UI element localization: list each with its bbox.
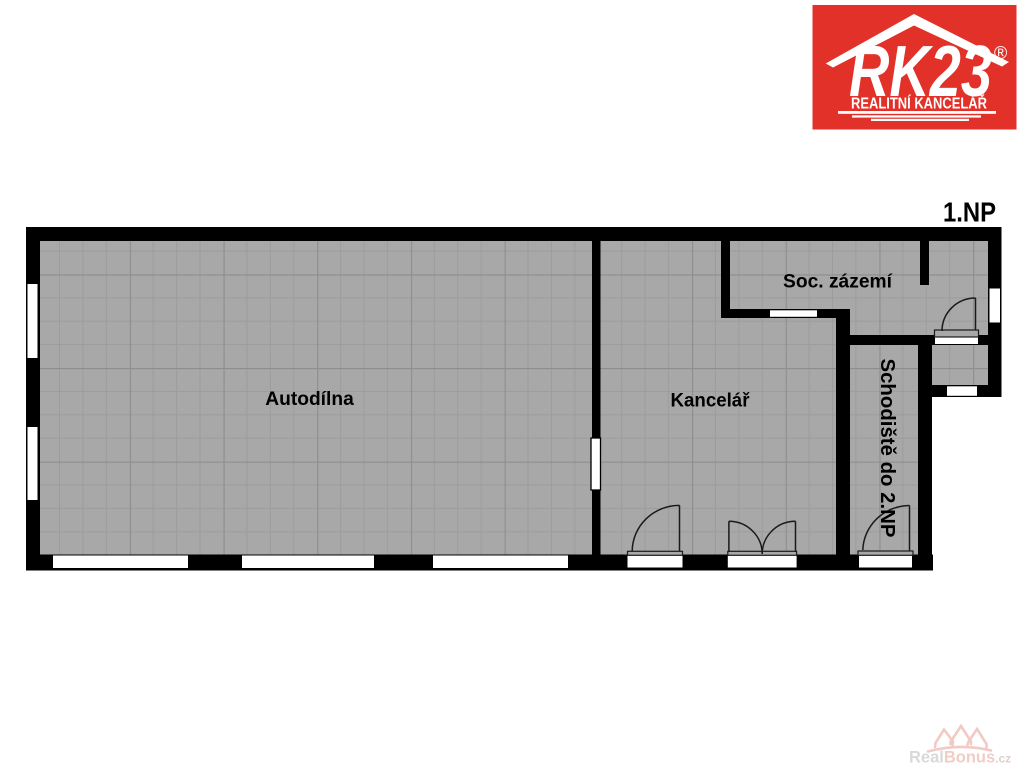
svg-text:REALITNÍ KANCELÁŘ: REALITNÍ KANCELÁŘ (851, 94, 987, 113)
svg-text:Kancelář: Kancelář (671, 390, 751, 411)
svg-text:Soc. zázemí: Soc. zázemí (783, 272, 893, 293)
svg-text:®: ® (994, 43, 1007, 63)
svg-text:1.NP: 1.NP (943, 197, 996, 228)
svg-text:Autodílna: Autodílna (265, 389, 354, 410)
svg-text:Schodiště do 2.NP: Schodiště do 2.NP (876, 359, 898, 538)
svg-text:RealBonus.cz: RealBonus.cz (909, 749, 1011, 767)
